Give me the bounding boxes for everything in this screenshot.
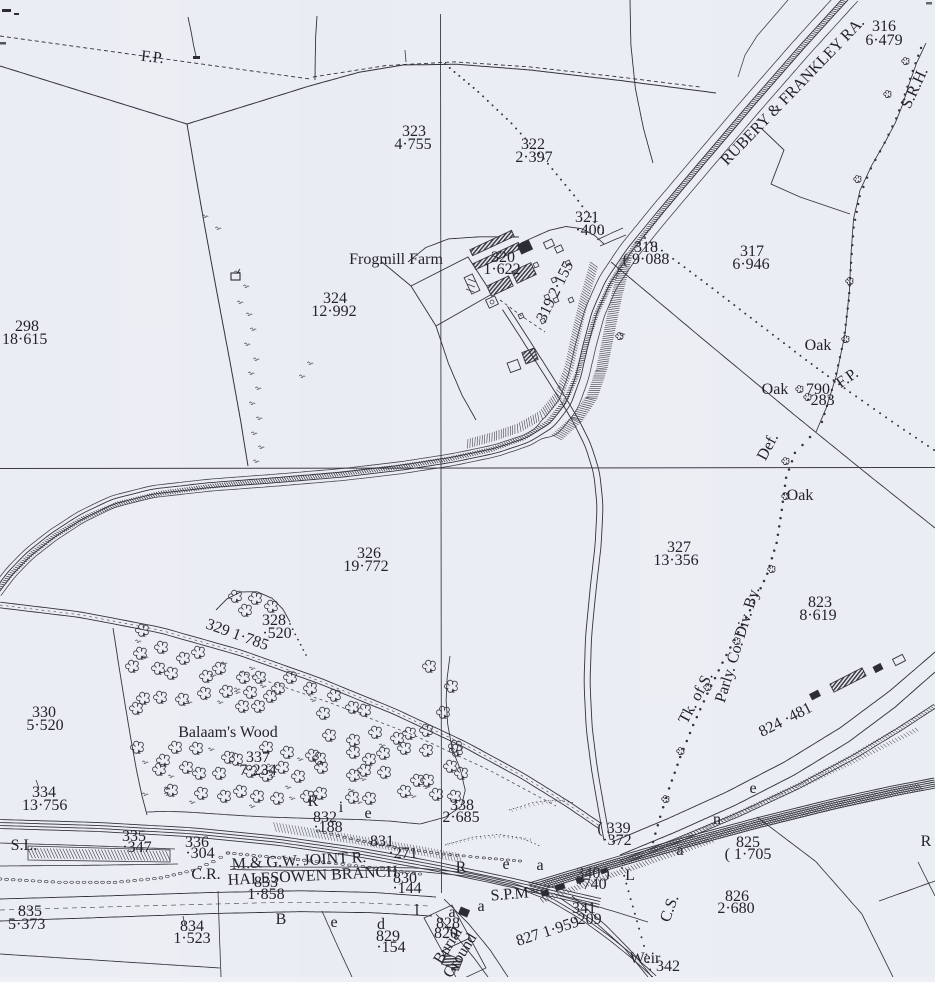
- svg-text:5·520: 5·520: [26, 717, 63, 734]
- svg-text:·304: ·304: [185, 845, 214, 862]
- svg-text:B: B: [276, 911, 287, 928]
- svg-text:Oak: Oak: [762, 381, 789, 398]
- svg-text:F.P.: F.P.: [140, 48, 164, 67]
- svg-text:R: R: [308, 793, 319, 810]
- svg-text:7·234: 7·234: [239, 762, 276, 779]
- svg-text:Oak: Oak: [805, 337, 832, 354]
- svg-text:C.R.: C.R.: [191, 866, 220, 883]
- svg-text:4·755: 4·755: [394, 136, 431, 153]
- svg-text:Balaam's Wood: Balaam's Wood: [178, 724, 278, 741]
- svg-text:·283: ·283: [805, 392, 834, 409]
- svg-text:e: e: [749, 780, 756, 797]
- svg-text:1·858: 1·858: [247, 886, 284, 903]
- svg-text:S.L.: S.L.: [11, 837, 38, 854]
- svg-text:·520: ·520: [262, 625, 291, 642]
- svg-text:e: e: [502, 856, 509, 873]
- svg-text:2·680: 2·680: [717, 900, 754, 917]
- svg-text:12·992: 12·992: [311, 303, 356, 320]
- svg-text:·271: ·271: [388, 845, 417, 862]
- svg-text:·400: ·400: [575, 222, 604, 239]
- svg-text:S.P.M: S.P.M: [490, 884, 530, 904]
- svg-text:·144: ·144: [392, 880, 421, 897]
- svg-text:R: R: [921, 833, 932, 850]
- svg-text:a: a: [536, 857, 543, 874]
- svg-text:e: e: [364, 805, 371, 822]
- svg-text:13·756: 13·756: [22, 797, 67, 814]
- svg-text:·372: ·372: [602, 832, 631, 849]
- svg-text:6·946: 6·946: [732, 256, 769, 273]
- svg-text:·188: ·188: [313, 819, 342, 836]
- svg-text:·209: ·209: [572, 911, 601, 928]
- svg-text:342: 342: [656, 958, 680, 975]
- svg-text:Oak: Oak: [787, 487, 814, 504]
- svg-text:2·397: 2·397: [515, 149, 552, 166]
- svg-text:n: n: [713, 811, 721, 828]
- svg-text:i: i: [339, 799, 344, 816]
- svg-text:1·523: 1·523: [173, 930, 210, 947]
- svg-text:2·685: 2·685: [442, 809, 479, 826]
- svg-text:·154: ·154: [376, 939, 405, 956]
- svg-text:·347: ·347: [122, 839, 151, 856]
- svg-text:l: l: [415, 902, 420, 919]
- svg-text:18·615: 18·615: [2, 331, 47, 348]
- svg-text:1·622: 1·622: [483, 261, 520, 278]
- svg-text:19·772: 19·772: [343, 558, 388, 575]
- svg-text:Frogmill Farm: Frogmill Farm: [349, 251, 443, 268]
- svg-text:13·356: 13·356: [653, 552, 698, 569]
- svg-text:R: R: [456, 859, 467, 876]
- svg-text:( 1·705: ( 1·705: [725, 846, 772, 863]
- svg-text:5·373: 5·373: [8, 916, 45, 933]
- svg-text:6·479: 6·479: [865, 32, 902, 49]
- svg-text:e: e: [330, 914, 337, 931]
- svg-text:8·619: 8·619: [799, 607, 836, 624]
- svg-text:a: a: [477, 898, 484, 915]
